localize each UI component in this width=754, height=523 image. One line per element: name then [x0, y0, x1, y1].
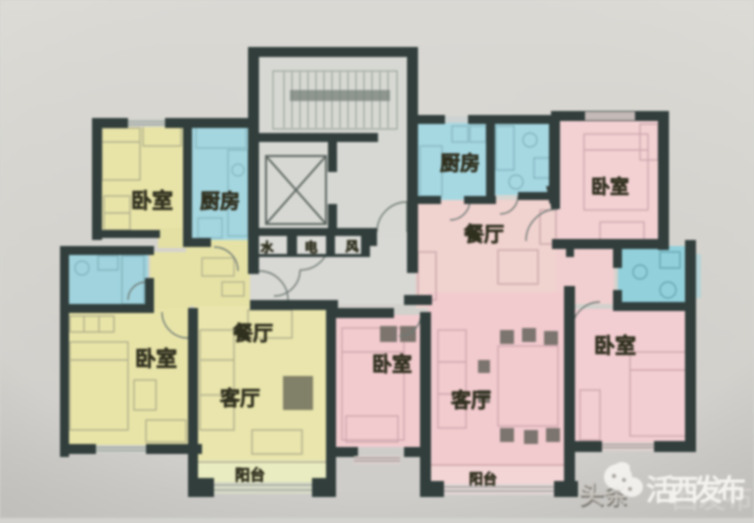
- svg-text:客厅: 客厅: [450, 388, 491, 412]
- svg-text:卧室: 卧室: [372, 352, 412, 376]
- svg-text:客厅: 客厅: [219, 386, 260, 410]
- svg-text:卧室: 卧室: [131, 189, 173, 213]
- svg-text:阳台: 阳台: [235, 466, 265, 484]
- svg-text:卧室: 卧室: [594, 334, 636, 358]
- svg-text:餐厅: 餐厅: [233, 321, 273, 345]
- svg-text:厨房: 厨房: [200, 189, 240, 213]
- svg-text:阳台: 阳台: [469, 471, 497, 487]
- svg-text:电: 电: [304, 240, 317, 255]
- svg-text:厨房: 厨房: [440, 151, 480, 175]
- svg-text:卧室: 卧室: [135, 347, 177, 371]
- svg-text:餐厅: 餐厅: [464, 222, 504, 246]
- svg-text:卧室: 卧室: [591, 175, 629, 198]
- svg-text:活西发布: 活西发布: [646, 474, 746, 507]
- svg-text:水: 水: [260, 240, 274, 255]
- svg-text:风: 风: [345, 239, 358, 254]
